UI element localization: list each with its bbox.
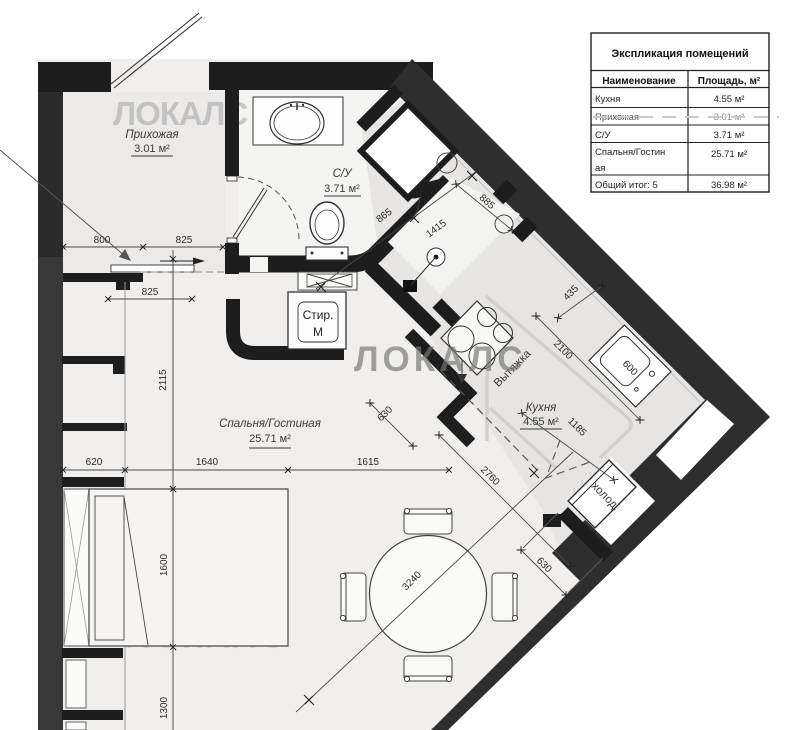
svg-text:620: 620: [86, 457, 103, 468]
svg-text:С/У: С/У: [333, 168, 354, 180]
svg-text:25.71 м²: 25.71 м²: [711, 149, 747, 160]
svg-text:3.71 м²: 3.71 м²: [714, 130, 745, 141]
svg-text:Наименование: Наименование: [602, 76, 676, 87]
svg-text:Спальня/Гостин: Спальня/Гостин: [595, 147, 665, 158]
svg-text:4.55 м²: 4.55 м²: [714, 94, 745, 105]
svg-text:1640: 1640: [196, 457, 219, 468]
svg-text:3.71 м²: 3.71 м²: [324, 183, 360, 195]
svg-text:2115: 2115: [158, 369, 169, 391]
svg-text:Кухня: Кухня: [526, 402, 557, 414]
svg-text:Общий итог: 5: Общий итог: 5: [595, 180, 658, 191]
svg-text:Кухня: Кухня: [595, 94, 620, 105]
svg-text:Стир.: Стир.: [303, 308, 334, 322]
svg-text:825: 825: [176, 235, 193, 246]
svg-text:ЛОКАЛС: ЛОКАЛС: [354, 340, 527, 379]
svg-text:1615: 1615: [357, 457, 380, 468]
svg-text:Прихожая: Прихожая: [125, 129, 178, 141]
svg-text:ая: ая: [595, 163, 605, 174]
svg-text:Площадь, м²: Площадь, м²: [698, 76, 761, 87]
svg-text:36.98 м²: 36.98 м²: [711, 180, 747, 191]
svg-text:800: 800: [94, 235, 111, 246]
svg-text:25.71 м²: 25.71 м²: [249, 433, 291, 445]
svg-text:М: М: [313, 325, 323, 339]
svg-text:Спальня/Гостиная: Спальня/Гостиная: [219, 418, 321, 430]
svg-text:Экспликация помещений: Экспликация помещений: [611, 48, 748, 60]
svg-text:1600: 1600: [159, 553, 170, 576]
svg-text:825: 825: [142, 287, 159, 298]
svg-text:С/У: С/У: [595, 130, 612, 141]
svg-text:3.01 м²: 3.01 м²: [134, 143, 170, 155]
svg-text:1300: 1300: [159, 696, 170, 719]
